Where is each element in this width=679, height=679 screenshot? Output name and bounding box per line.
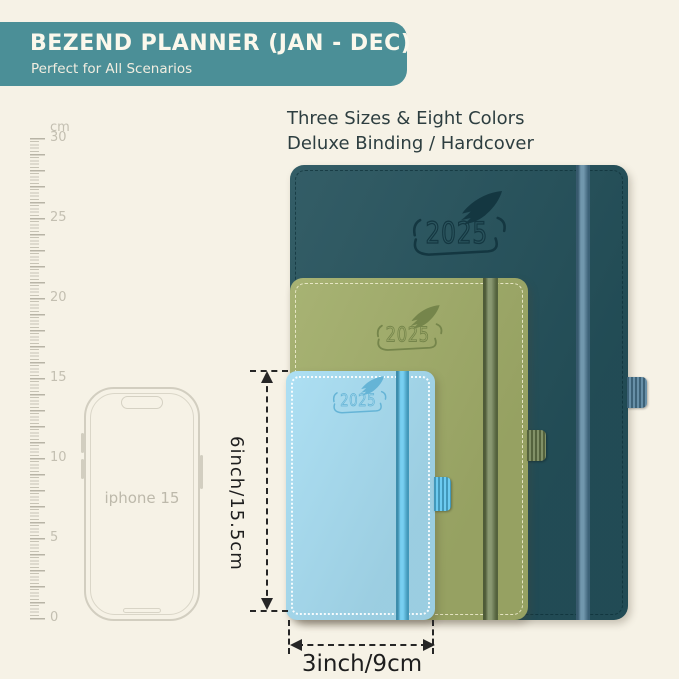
elastic-band [483, 278, 498, 620]
year-text: 2025 [340, 390, 376, 410]
ruler-label: 15 [50, 370, 84, 385]
arrow-left-icon [290, 639, 302, 651]
year-text: 2025 [386, 323, 430, 347]
power-button-icon [200, 455, 203, 489]
logo-arc-right [382, 392, 386, 399]
volume-button-icon [81, 433, 84, 453]
arrow-right-icon [423, 639, 435, 651]
height-dimension-line [266, 376, 268, 606]
pen-loop [527, 430, 546, 461]
speaker-slot-icon [123, 608, 161, 613]
ruler-label: 30 [50, 130, 84, 145]
ruler-major-ticks [30, 138, 45, 620]
headline: Three Sizes & Eight Colors Deluxe Bindin… [287, 106, 534, 156]
product-image: BEZEND PLANNER (JAN - DEC) Perfect for A… [0, 0, 679, 679]
height-extension-bottom [250, 610, 288, 612]
arrow-up-icon [261, 371, 273, 383]
brand-subtitle: Perfect for All Scenarios [31, 61, 192, 77]
iphone-label: iphone 15 [86, 489, 198, 507]
elastic-band [396, 371, 409, 620]
logo-arc-left [378, 326, 382, 337]
volume-button-icon [81, 459, 84, 479]
ruler-label: 10 [50, 450, 84, 465]
pen-loop [434, 477, 451, 511]
width-dimension-line [297, 644, 427, 646]
height-dimension-label: 6inch/15.5cm [226, 436, 247, 596]
logo-arc-right [437, 324, 442, 333]
width-dimension-label: 3inch/9cm [278, 651, 446, 677]
planner-small: 2025 [286, 371, 435, 620]
elastic-band [576, 165, 590, 620]
arrow-down-icon [261, 598, 273, 610]
logo-arc-left [334, 393, 337, 402]
brand-title: BEZEND PLANNER (JAN - DEC) [30, 31, 411, 56]
ruler-label: 25 [50, 210, 84, 225]
dynamic-island-icon [121, 396, 163, 409]
header-banner: BEZEND PLANNER (JAN - DEC) Perfect for A… [0, 22, 407, 86]
ruler-label: 0 [50, 610, 84, 625]
ruler-label: 20 [50, 290, 84, 305]
headline-line1: Three Sizes & Eight Colors [287, 106, 534, 131]
pen-loop [627, 377, 647, 408]
logo-arc-right [498, 218, 505, 231]
iphone-outline: iphone 15 [84, 387, 200, 621]
year-2025-logo: 2025 [372, 305, 448, 354]
logo-arc-left [414, 220, 420, 235]
headline-line2: Deluxe Binding / Hardcover [287, 131, 534, 156]
ruler-label: 5 [50, 530, 84, 545]
year-2025-logo: 2025 [406, 191, 514, 260]
year-text: 2025 [426, 216, 489, 250]
year-2025-logo: 2025 [329, 376, 391, 416]
